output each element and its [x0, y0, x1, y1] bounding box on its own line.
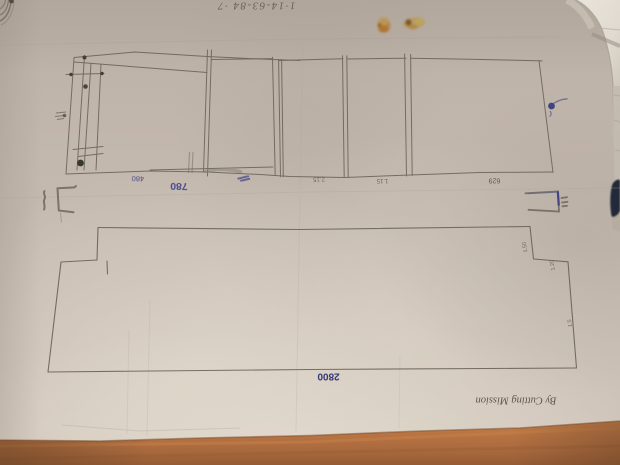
svg-text:By Cutting Mission: By Cutting Mission [475, 395, 556, 406]
svg-text:1.5: 1.5 [567, 319, 574, 327]
svg-text:1.50: 1.50 [522, 241, 529, 252]
svg-text:1.15: 1.15 [376, 177, 388, 183]
svg-text:2.15: 2.15 [313, 176, 325, 182]
svg-text:1·14-63-84 ·7: 1·14-63-84 ·7 [216, 0, 295, 12]
svg-text:1.20: 1.20 [549, 259, 556, 270]
svg-text:2800: 2800 [317, 371, 340, 382]
svg-text:629: 629 [489, 177, 501, 184]
svg-text:780: 780 [170, 180, 188, 192]
svg-text:480: 480 [132, 174, 145, 183]
